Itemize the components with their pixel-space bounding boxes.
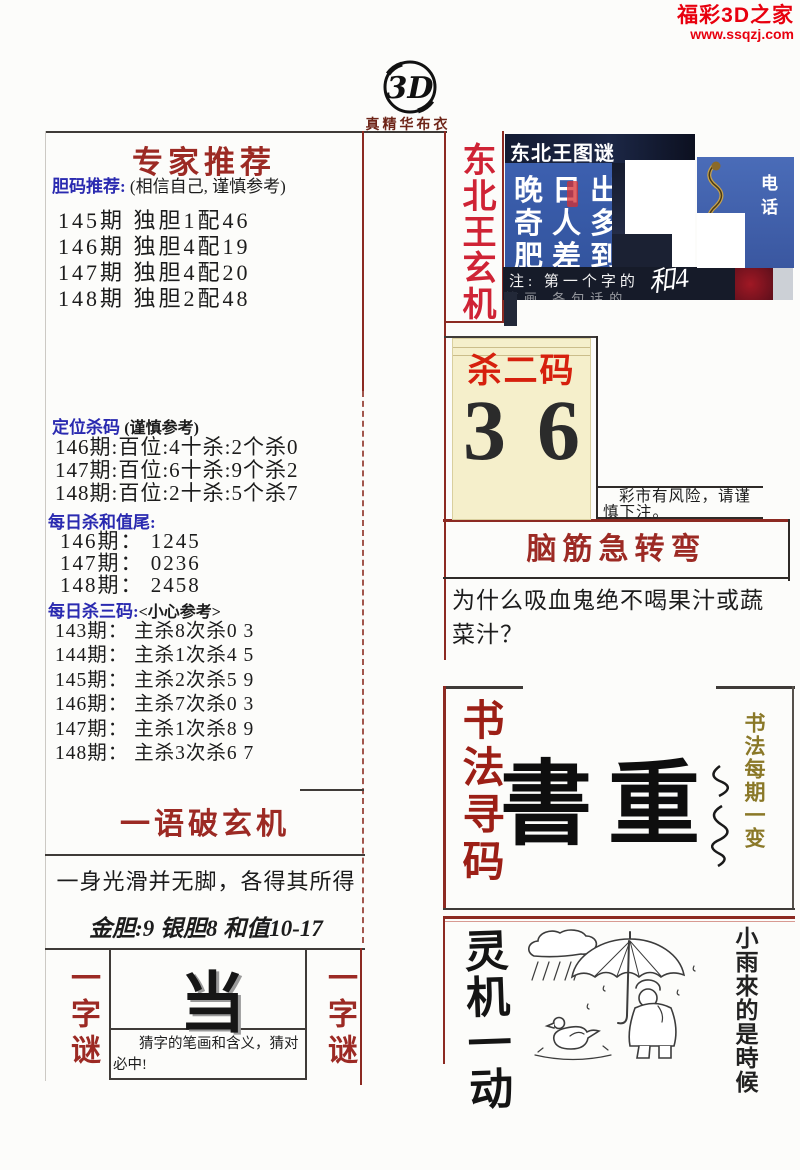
hezhiwei-line: 148期： 2458: [60, 574, 201, 596]
yizimi-riddle-character: 当: [120, 950, 305, 1046]
calligraphy-characters: 書重: [500, 730, 720, 863]
danma-line: 146期 独胆4配19: [58, 234, 251, 260]
dingwei-list: 146期:百位:4十杀:2个杀0 147期:百位:6十杀:9个杀2 148期:百…: [55, 436, 299, 505]
signature-icon: [696, 760, 740, 872]
divider: [716, 686, 795, 689]
divider: [109, 1078, 307, 1080]
censored-block: [697, 213, 745, 268]
note-text-faint: 笔画 各句话的: [505, 288, 628, 300]
sansanma-line: 147期： 主杀1次杀8 9: [55, 718, 254, 742]
phone-label: 电话: [755, 174, 780, 222]
brain-teaser-question: 为什么吸血鬼绝不喝果汁或蔬菜汁？: [452, 584, 764, 652]
logo-3d-icon: 3D: [374, 58, 446, 116]
sansanma-list: 143期： 主杀8次杀0 3 144期： 主杀1次杀4 5 145期： 主杀2次…: [55, 620, 254, 766]
divider: [443, 686, 446, 910]
divider: [444, 131, 446, 660]
sansanma-line: 144期： 主杀1次杀4 5: [55, 644, 254, 668]
handwritten-scribble: 和4: [645, 255, 691, 299]
dongbei-panel-title: 东北王图谜: [510, 137, 615, 166]
svg-text:3D: 3D: [387, 71, 434, 106]
site-watermark: 福彩3D之家 www.ssqzj.com: [624, 5, 794, 42]
flash-idea-caption: 小雨來的是時候: [727, 926, 761, 1118]
photo-fragment: [504, 292, 517, 326]
expert-subtitle: 胆码推荐: (相信自己, 谨慎参考): [52, 172, 286, 197]
calligraphy-note: 书法每期一变: [739, 712, 769, 912]
divider: [443, 916, 445, 1064]
divider: [45, 131, 447, 133]
dongbei-panel-titlebar: 东北王图谜: [505, 134, 695, 163]
danma-label: 胆码推荐:: [52, 177, 126, 196]
red-photo-fragment: [735, 268, 773, 300]
photo-fragment: [773, 268, 793, 300]
risk-warning: 彩市有风险，请谨慎下注。: [603, 489, 765, 520]
danma-line: 148期 独胆2配48: [58, 286, 251, 312]
flash-idea-side-label: 灵机一动: [449, 927, 520, 1119]
brain-teaser-title: 脑筋急转弯: [443, 524, 790, 568]
divider: [443, 921, 795, 922]
divider: [45, 854, 365, 856]
dingwei-line: 148期:百位:2十杀:5个杀7: [55, 482, 299, 505]
divider: [109, 948, 111, 1080]
hezhiwei-line: 146期： 1245: [60, 530, 201, 552]
sansanma-line: 148期： 主杀3次杀6 7: [55, 742, 254, 766]
red-seal-mark: [567, 181, 578, 207]
kill-number: 3: [463, 383, 506, 478]
divider: [443, 916, 795, 919]
dingwei-line: 146期:百位:4十杀:2个杀0: [55, 436, 299, 459]
dongbei-side-label: 东北王玄机: [451, 142, 500, 326]
divider: [362, 391, 364, 943]
sansanma-line: 146期： 主杀7次杀0 3: [55, 693, 254, 717]
divider: [300, 789, 364, 791]
kill-two-codes-box: 杀二码 3 6: [452, 338, 591, 520]
divider: [443, 577, 790, 579]
section-title-yuyu: 一语破玄机: [45, 799, 365, 843]
sansanma-line: 143期： 主杀8次杀0 3: [55, 620, 254, 644]
divider: [443, 686, 523, 689]
yuyu-golden-pick: 金胆:9 银胆8 和值10-17: [45, 909, 367, 943]
danma-note: (相信自己, 谨慎参考): [130, 177, 286, 196]
hezhiwei-list: 146期： 1245 147期： 0236 148期： 2458: [60, 530, 201, 596]
kill-two-codes-numbers: 3 6: [453, 383, 590, 478]
danma-line: 145期 独胆1配46: [58, 208, 251, 234]
sansanma-line: 145期： 主杀2次杀5 9: [55, 669, 254, 693]
yizimi-hint: 猜字的笔画和含义，猜对必中!: [113, 1034, 307, 1076]
phone-ad-panel: 电话: [697, 157, 794, 268]
lottery-newspaper-page: 福彩3D之家 www.ssqzj.com 3D 真精华布衣 专家推荐 胆码推荐:…: [0, 0, 800, 1170]
danma-line: 147期 独胆4配20: [58, 260, 251, 286]
rain-umbrella-cartoon: [518, 924, 714, 1072]
yuyu-riddle: 一身光滑并无脚，各得其所得: [45, 864, 367, 896]
brand-name: 福彩3D之家: [624, 5, 794, 27]
sansanma-label: 每日杀三码:<小心参考>: [48, 597, 221, 622]
yizimi-side-label: 一字谜: [60, 962, 104, 1074]
dongbei-note-strip: 注: 第一个字的 笔画 各句话的: [503, 267, 735, 300]
brand-url: www.ssqzj.com: [624, 27, 794, 42]
dingwei-line: 147期:百位:6十杀:9个杀2: [55, 459, 299, 482]
kill-number: 6: [537, 383, 580, 478]
danma-list: 145期 独胆1配46 146期 独胆4配19 147期 独胆4配20 148期…: [58, 208, 251, 312]
divider: [596, 336, 598, 519]
divider: [792, 686, 794, 910]
hezhiwei-line: 147期： 0236: [60, 552, 201, 574]
yizimi-side-label: 一字谜: [317, 962, 361, 1074]
